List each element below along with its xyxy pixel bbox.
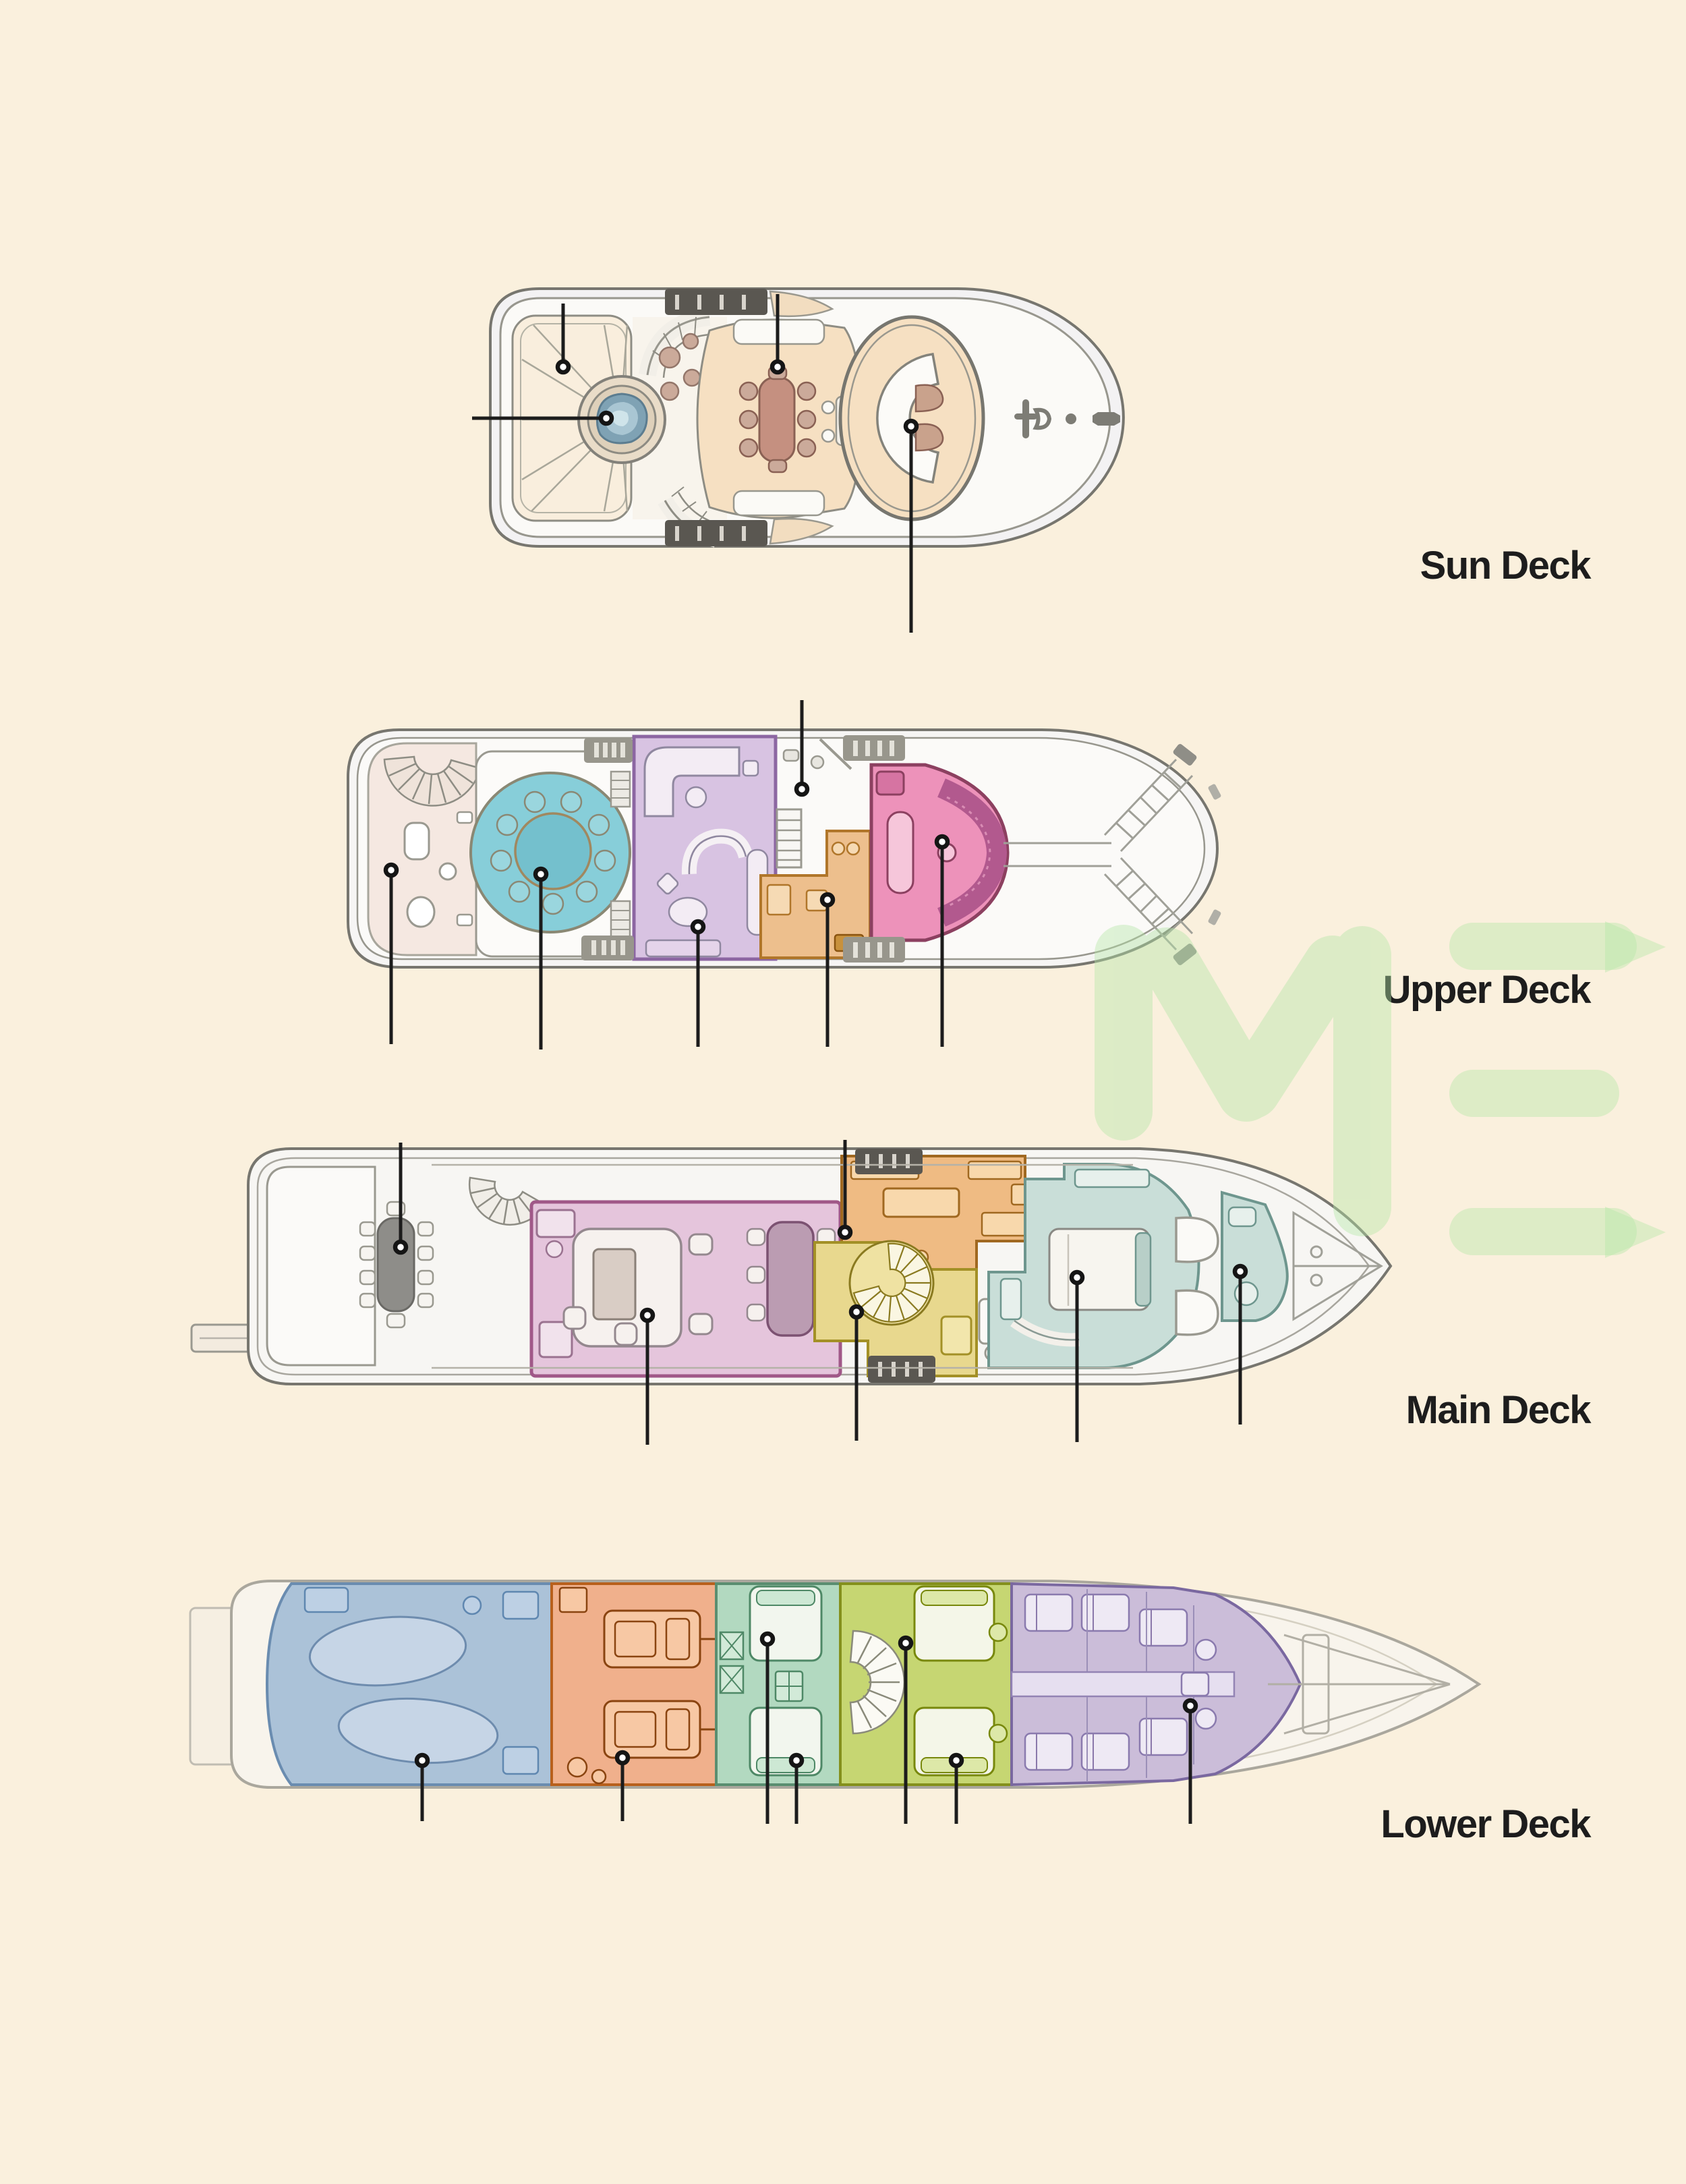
svg-text:Sun Deck: Sun Deck — [1420, 544, 1592, 587]
svg-text:Lower Deck: Lower Deck — [1380, 1802, 1592, 1846]
svg-text:Main Deck: Main Deck — [1406, 1388, 1592, 1432]
svg-text:Upper Deck: Upper Deck — [1383, 968, 1592, 1012]
